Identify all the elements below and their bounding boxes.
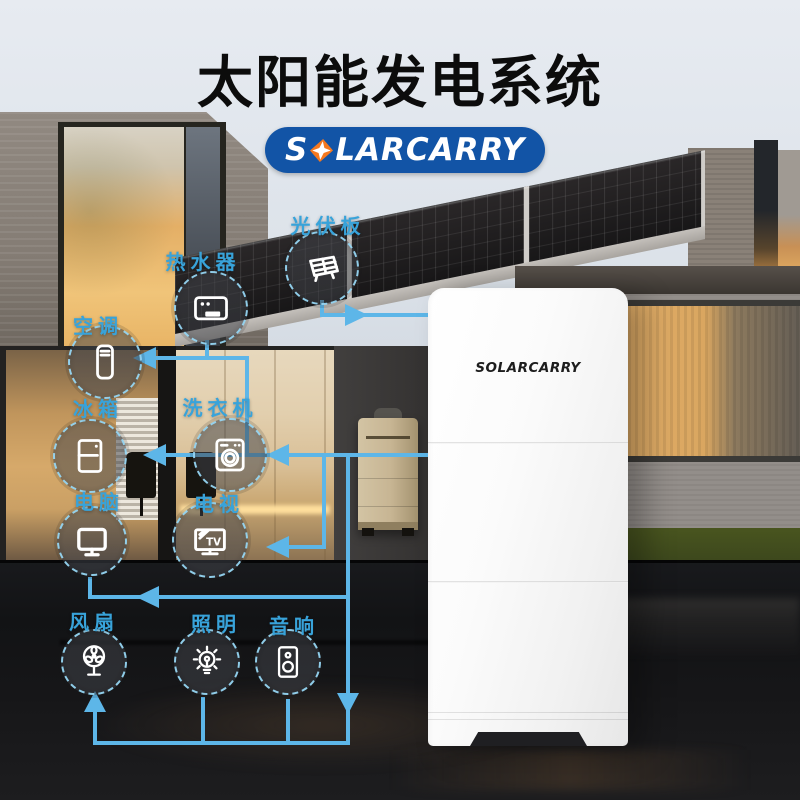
arrow-down-icon [337,693,359,714]
page-title: 太阳能发电系统 [0,38,800,119]
audio-speaker-icon [267,641,309,683]
battery-brand-label: SOLARCARRY [428,360,628,376]
arrow-left-icon [266,536,289,558]
node-washer [193,418,267,492]
brand-sun-icon [309,139,335,162]
poster-canvas: SOLARCARRY 光伏板 热水器 空调 [0,0,800,800]
node-label-solar-panel: 光伏板 [291,210,366,239]
washer-icon [207,432,253,478]
line-fan-up [93,712,97,743]
line-tv-branch [322,453,326,549]
node-computer [57,506,127,576]
tv-icon: TV [186,516,234,564]
background-right-edge [778,150,800,268]
gold-unit-seam [358,478,418,479]
gold-unit-seam [358,506,418,507]
gold-unit-logo [366,436,410,439]
background-reflection [600,598,800,658]
node-solar-panel [285,231,359,305]
arrow-left-icon [143,444,166,466]
node-label-audio: 音响 [269,610,319,639]
line-audio-down [286,699,290,743]
brand-logo-badge: S LARCARRY [265,127,545,173]
node-label-fridge: 冰箱 [73,393,123,422]
brand-star-icon [309,139,335,162]
water-heater-icon [188,285,234,331]
node-water-heater [174,271,248,345]
node-label-washer: 洗衣机 [183,392,258,421]
fridge-icon [67,433,113,479]
battery-seam [428,442,628,444]
node-fridge [53,419,127,493]
brand-logo-text-suffix: LARCARRY [335,132,525,168]
tv-icon-text: TV [206,537,221,548]
battery-unit: SOLARCARRY [428,288,628,746]
gold-battery-unit [358,418,418,530]
line-computer-down [88,577,92,597]
line-heater-row [152,356,249,360]
line-pv-to-battery [322,313,428,317]
brand-logo-text-prefix: S [285,132,308,168]
battery-seam [428,719,628,720]
arrow-left-icon [136,586,159,608]
computer-icon [70,519,114,563]
gold-unit-foot [362,528,374,536]
node-label-tv: 电视 [194,488,244,517]
battery-base-notch [470,732,587,746]
node-label-computer: 电脑 [74,486,124,515]
node-label-lighting: 照明 [191,608,241,637]
line-main-row [150,453,430,457]
node-label-fan: 风扇 [69,606,119,635]
battery-seam [428,712,628,713]
fan-icon [73,641,115,683]
background-right-tower-glass [754,140,778,268]
line-computer-row [88,595,350,599]
node-label-water-heater: 热水器 [166,246,241,275]
battery-seam [428,581,628,583]
arrow-left-icon [266,444,289,466]
line-bottom-row [93,741,350,745]
node-lighting [174,629,240,695]
line-light-down [201,697,205,743]
air-conditioner-icon [82,339,128,385]
gold-unit-foot [402,528,414,536]
solar-panel-icon [299,245,345,291]
lighting-icon [186,641,228,683]
node-fan [61,629,127,695]
background-right-window-glass [628,306,800,456]
background-reflection [390,750,750,790]
node-label-air-conditioner: 空调 [73,310,123,339]
arrow-right-icon [345,304,368,326]
